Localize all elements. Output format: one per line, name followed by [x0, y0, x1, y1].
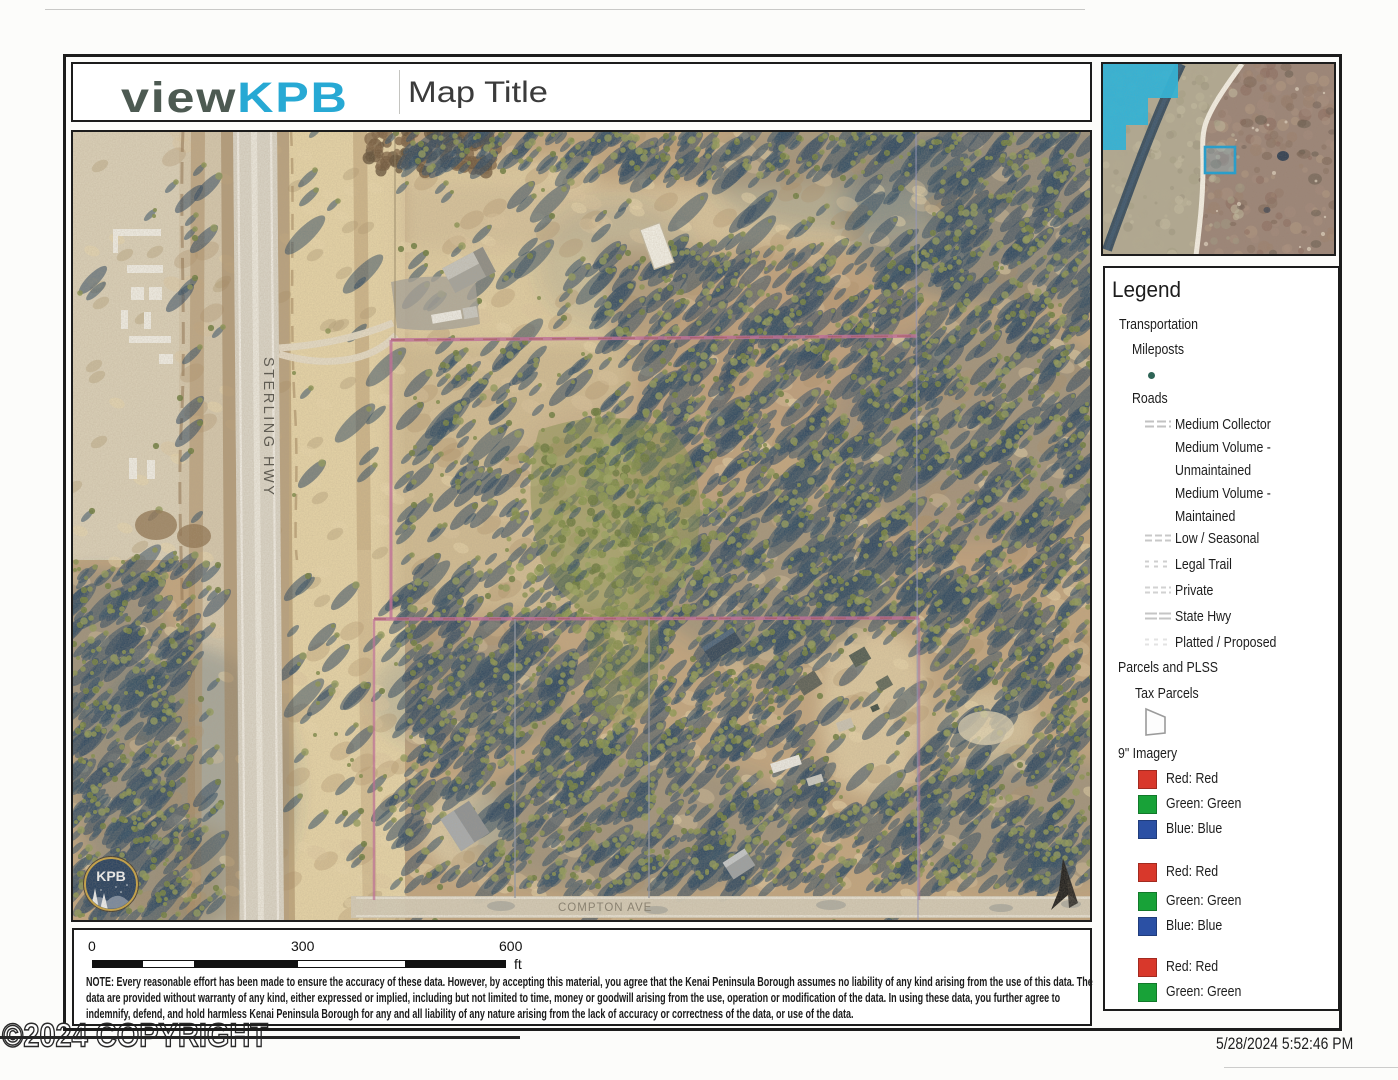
svg-text:©2024 COPYRIGHT: ©2024 COPYRIGHT: [2, 1017, 268, 1054]
